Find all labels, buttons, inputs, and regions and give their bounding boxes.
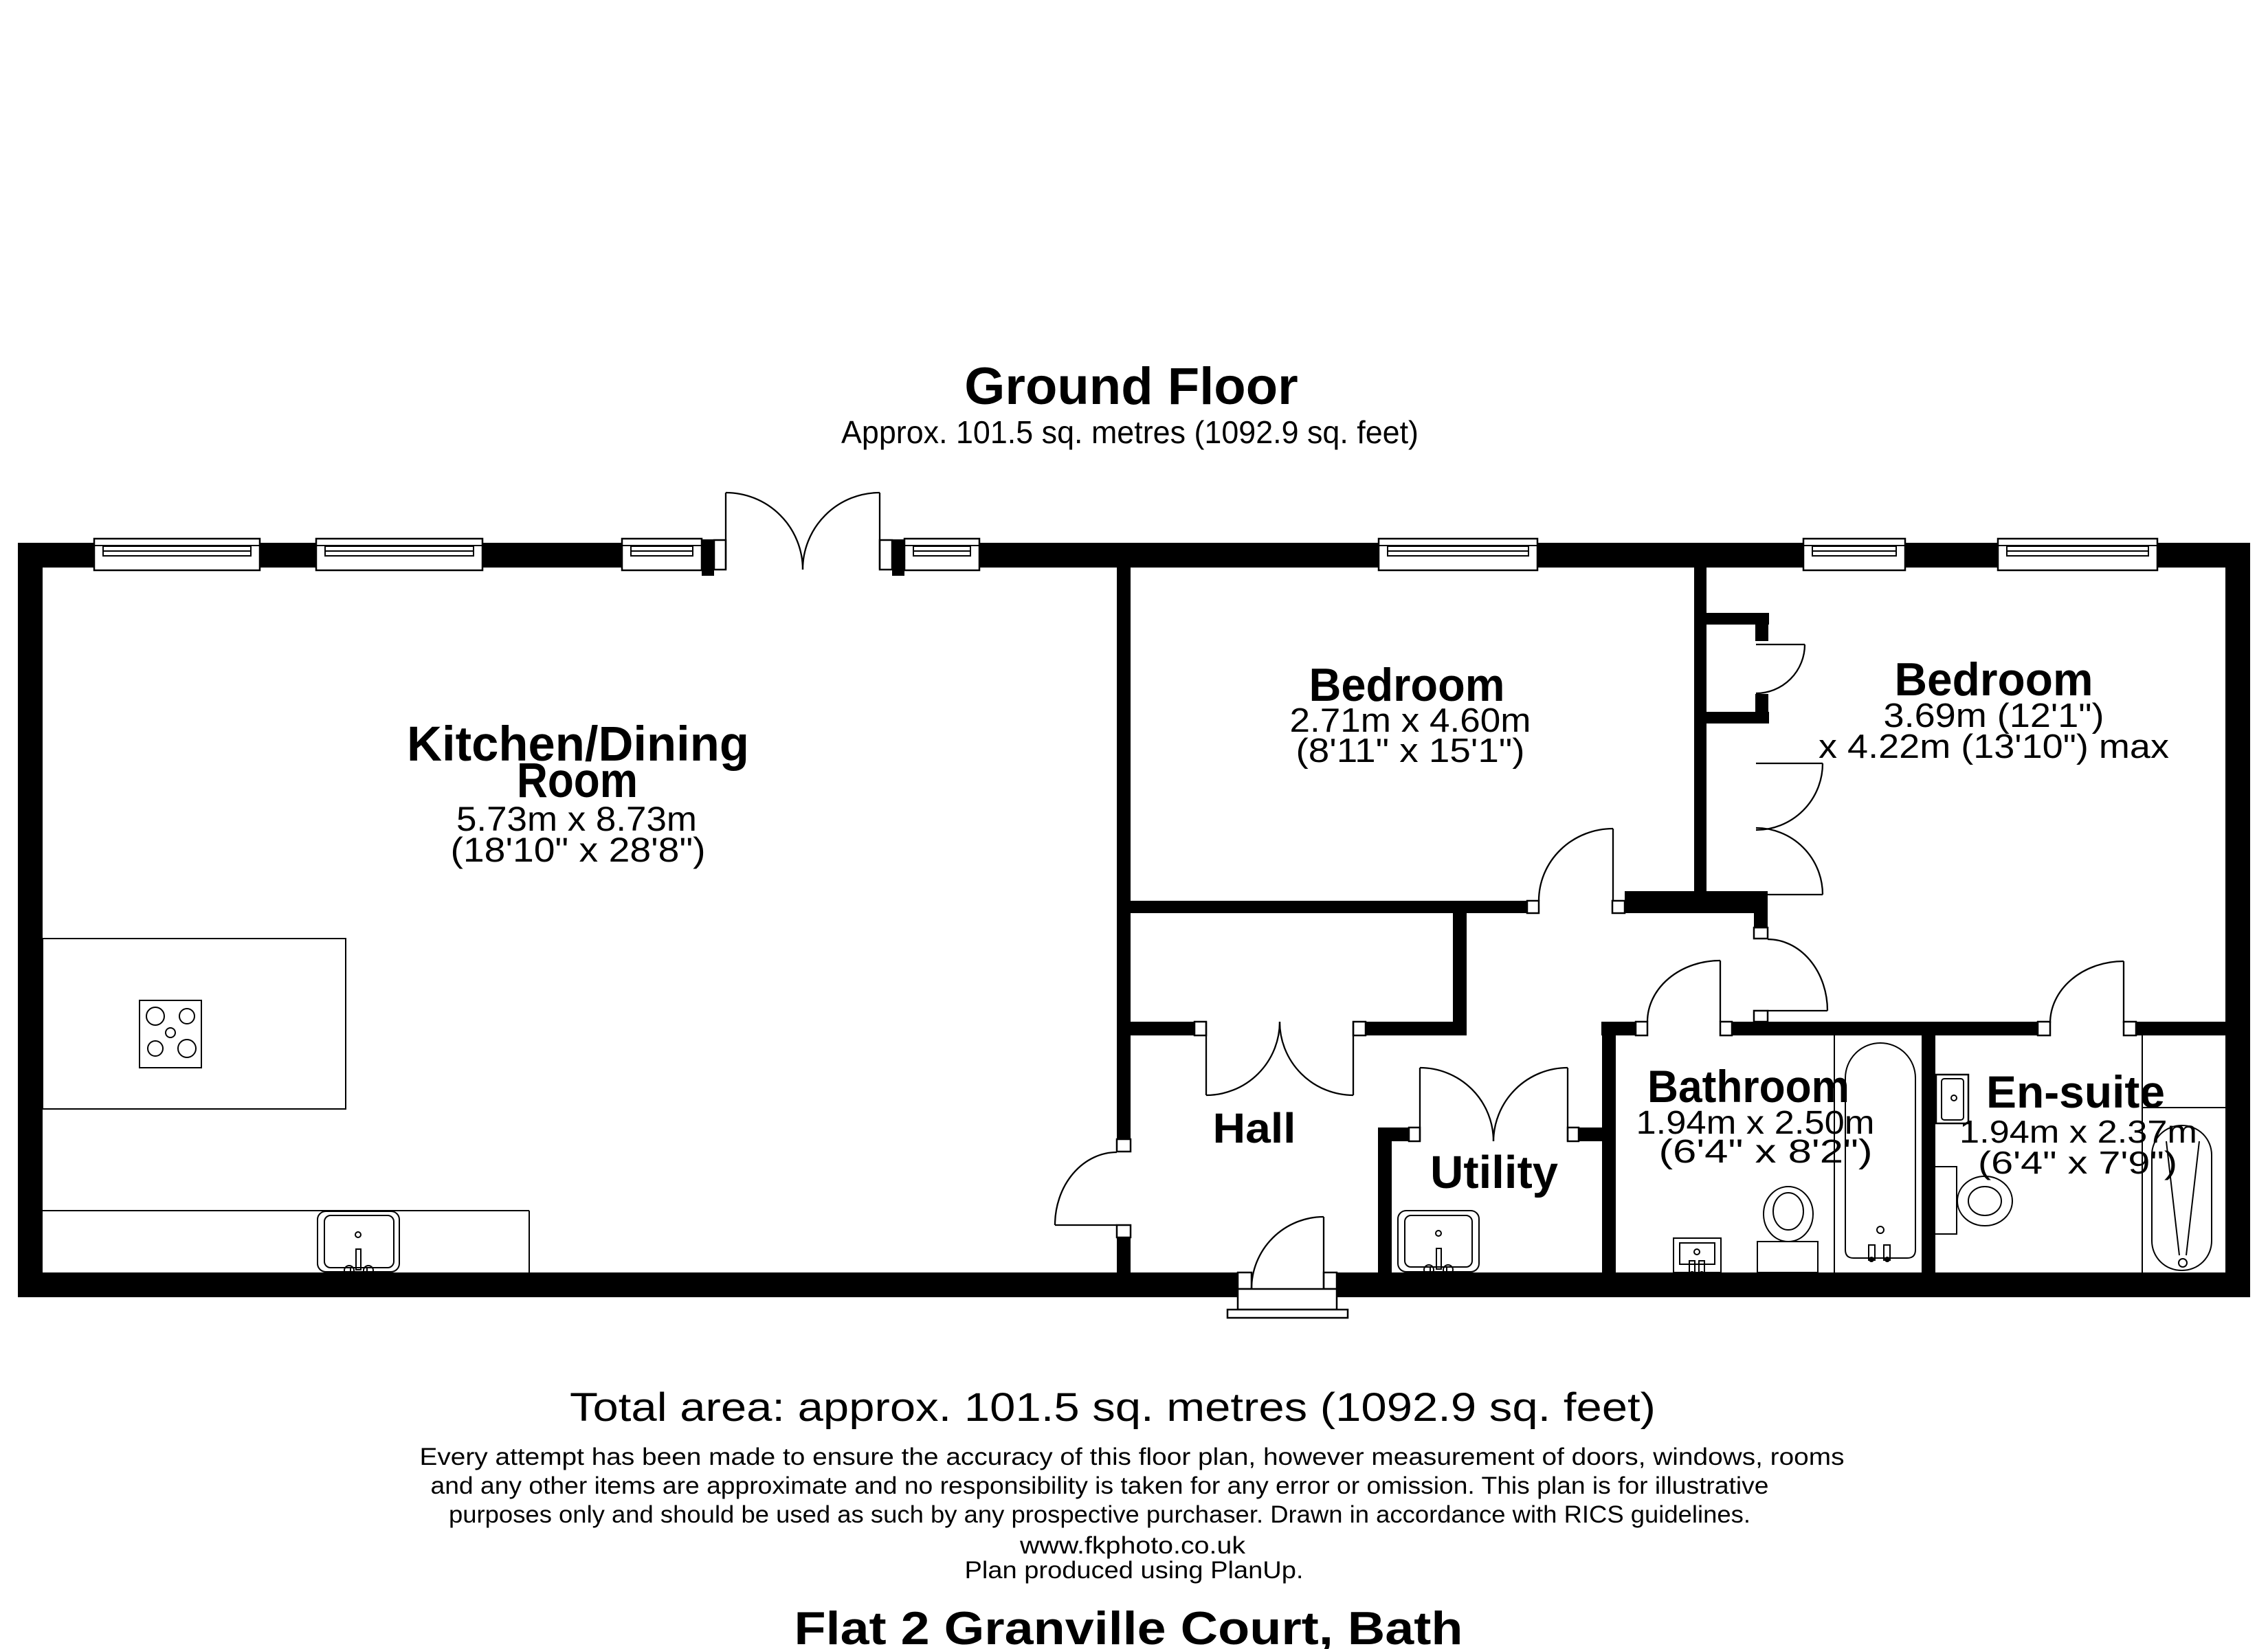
svg-text:Hall: Hall xyxy=(1213,1105,1296,1152)
svg-text:Plan produced using PlanUp.: Plan produced using PlanUp. xyxy=(965,1557,1304,1584)
svg-text:Total area: approx. 101.5 sq.: Total area: approx. 101.5 sq. metres (10… xyxy=(570,1385,1656,1430)
svg-text:(6'4" x 7'9"): (6'4" x 7'9") xyxy=(1978,1145,2177,1180)
svg-text:(18'10" x 28'8"): (18'10" x 28'8") xyxy=(451,831,706,869)
svg-text:(8'11" x 15'1"): (8'11" x 15'1") xyxy=(1296,732,1525,770)
svg-text:Flat 2 Granville Court, Bath: Flat 2 Granville Court, Bath xyxy=(794,1602,1463,1649)
svg-text:Approx. 101.5 sq. metres (1092: Approx. 101.5 sq. metres (1092.9 sq. fee… xyxy=(841,414,1419,450)
svg-text:Every attempt has been made to: Every attempt has been made to ensure th… xyxy=(420,1444,1845,1470)
svg-text:Ground Floor: Ground Floor xyxy=(964,357,1298,416)
svg-text:En-suite: En-suite xyxy=(1986,1066,2165,1117)
svg-text:(6'4" x 8'2"): (6'4" x 8'2") xyxy=(1659,1134,1873,1170)
svg-text:x 4.22m (13'10") max: x 4.22m (13'10") max xyxy=(1819,728,2169,765)
svg-text:and any other items are approx: and any other items are approximate and … xyxy=(431,1472,1769,1499)
svg-text:Utility: Utility xyxy=(1430,1147,1558,1198)
svg-text:purposes only and should be us: purposes only and should be used as such… xyxy=(449,1501,1750,1528)
svg-text:www.fkphoto.co.uk: www.fkphoto.co.uk xyxy=(1019,1532,1246,1559)
svg-text:Bathroom: Bathroom xyxy=(1647,1061,1849,1112)
